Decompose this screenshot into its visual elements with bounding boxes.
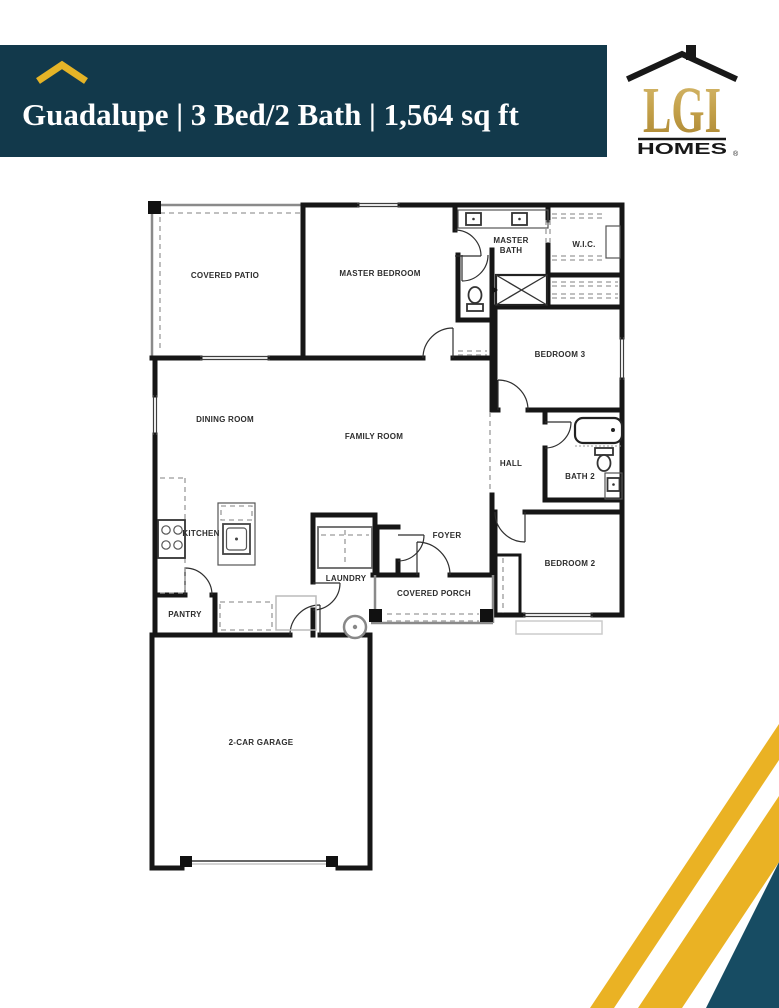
room-label-dining-room: DINING ROOM (196, 415, 254, 424)
corner-navy-triangle (706, 862, 779, 1008)
plan-title: Guadalupe | 3 Bed/2 Bath | 1,564 sq ft (22, 97, 519, 133)
room-label-bedroom-3: BEDROOM 3 (535, 350, 586, 359)
bath2-tub-icon (575, 418, 622, 446)
gold-stripe-inner (638, 796, 779, 1008)
room-labels-layer: COVERED PATIO MASTER BEDROOM MASTER BATH… (168, 236, 595, 747)
mud-bench (276, 596, 316, 630)
master-shower-icon (492, 275, 547, 305)
exterior-edges-layer (180, 575, 602, 867)
room-label-master-bedroom: MASTER BEDROOM (339, 269, 420, 278)
master-toilet-icon (467, 287, 483, 311)
stove-icon (158, 520, 185, 558)
room-label-master-bath-2: BATH (500, 246, 523, 255)
lgi-homes-logo: LGI HOMES ® (622, 40, 772, 162)
room-label-wic: W.I.C. (572, 240, 595, 249)
garage-door-jamb-left (180, 856, 192, 867)
room-label-covered-patio: COVERED PATIO (191, 271, 259, 280)
wic-shelf-unit (606, 226, 620, 258)
room-label-foyer: FOYER (433, 531, 462, 540)
room-label-garage: 2-CAR GARAGE (229, 738, 294, 747)
room-label-kitchen: KITCHEN (182, 529, 219, 538)
roof-chevron-path (38, 65, 86, 81)
roof-chevron-icon (34, 57, 90, 85)
logo-wordmark-text: HOMES (637, 141, 727, 158)
bath2-vanity-icon (605, 473, 622, 499)
water-heater-icon (344, 616, 366, 638)
logo-brand-text: LGI (643, 74, 721, 147)
washer-dryer-icon (318, 527, 372, 568)
bedroom2-window-sill (516, 621, 602, 634)
room-label-covered-porch: COVERED PORCH (397, 589, 471, 598)
porch-column-right (480, 609, 493, 622)
room-label-pantry: PANTRY (168, 610, 202, 619)
master-vanity-icon (458, 210, 548, 228)
room-label-bedroom-2: BEDROOM 2 (545, 559, 596, 568)
logo-registered-mark: ® (733, 150, 739, 158)
room-label-bath-2: BATH 2 (565, 472, 595, 481)
room-label-family-room: FAMILY ROOM (345, 432, 403, 441)
floor-plan: COVERED PATIO MASTER BEDROOM MASTER BATH… (140, 190, 640, 890)
porch-column-left (369, 609, 382, 622)
plan-title-banner: Guadalupe | 3 Bed/2 Bath | 1,564 sq ft (0, 45, 607, 157)
garage-door-jamb-right (326, 856, 338, 867)
bath2-toilet-icon (595, 448, 613, 471)
room-label-laundry: LAUNDRY (326, 574, 367, 583)
room-label-hall: HALL (500, 459, 522, 468)
flyer-page: Guadalupe | 3 Bed/2 Bath | 1,564 sq ft L… (0, 0, 779, 1008)
patio-corner-post (148, 201, 161, 214)
room-label-master-bath-1: MASTER (493, 236, 528, 245)
kitchen-island-icon (218, 503, 255, 565)
